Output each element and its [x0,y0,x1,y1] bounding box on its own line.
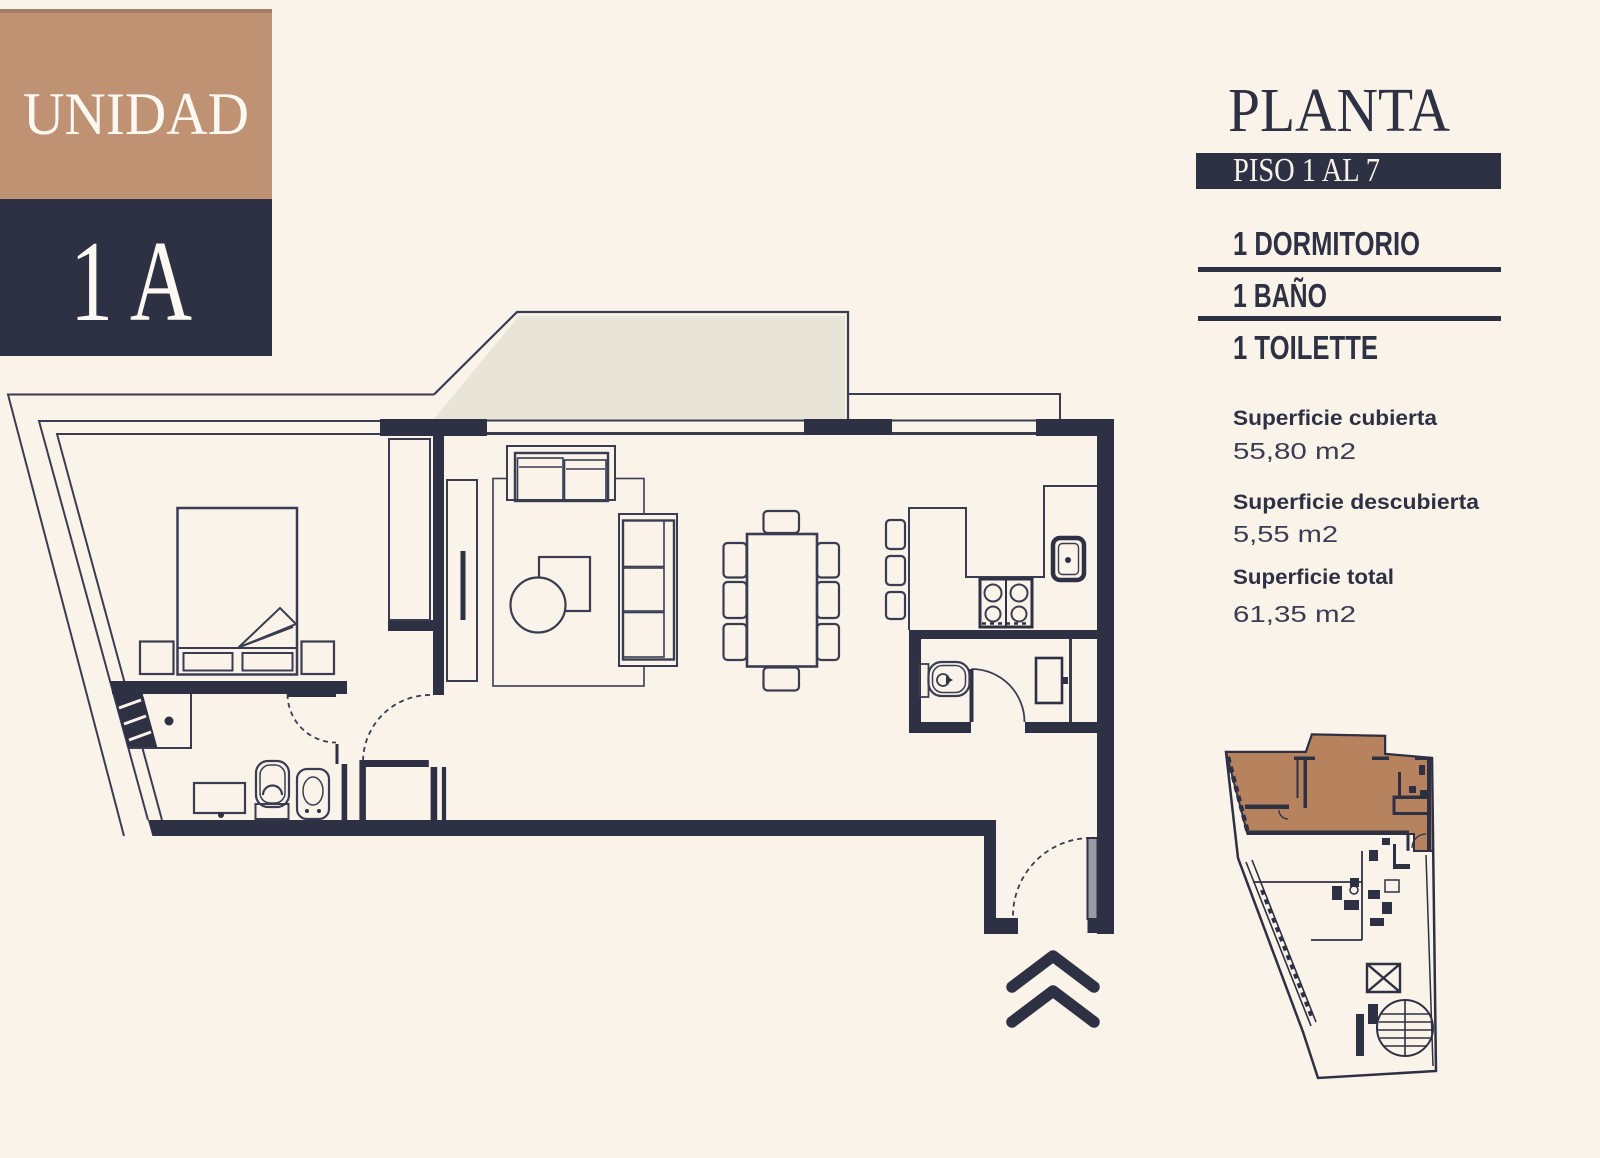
svg-text:PLANTA: PLANTA [1228,77,1450,145]
svg-text:1 BAÑO: 1 BAÑO [1233,277,1327,314]
svg-text:Superficie total: Superficie total [1233,566,1394,589]
svg-text:55,80 m2: 55,80 m2 [1233,438,1356,464]
svg-text:PISO 1 AL 7: PISO 1 AL 7 [1233,152,1380,189]
svg-text:Superficie cubierta: Superficie cubierta [1233,407,1437,430]
svg-text:Superficie descubierta: Superficie descubierta [1233,491,1479,514]
svg-text:1 A: 1 A [70,218,192,345]
svg-text:1 DORMITORIO: 1 DORMITORIO [1233,225,1420,262]
svg-text:5,55 m2: 5,55 m2 [1233,521,1338,547]
svg-text:1 TOILETTE: 1 TOILETTE [1233,329,1378,366]
svg-text:61,35 m2: 61,35 m2 [1233,601,1356,627]
svg-text:UNIDAD: UNIDAD [23,81,249,147]
